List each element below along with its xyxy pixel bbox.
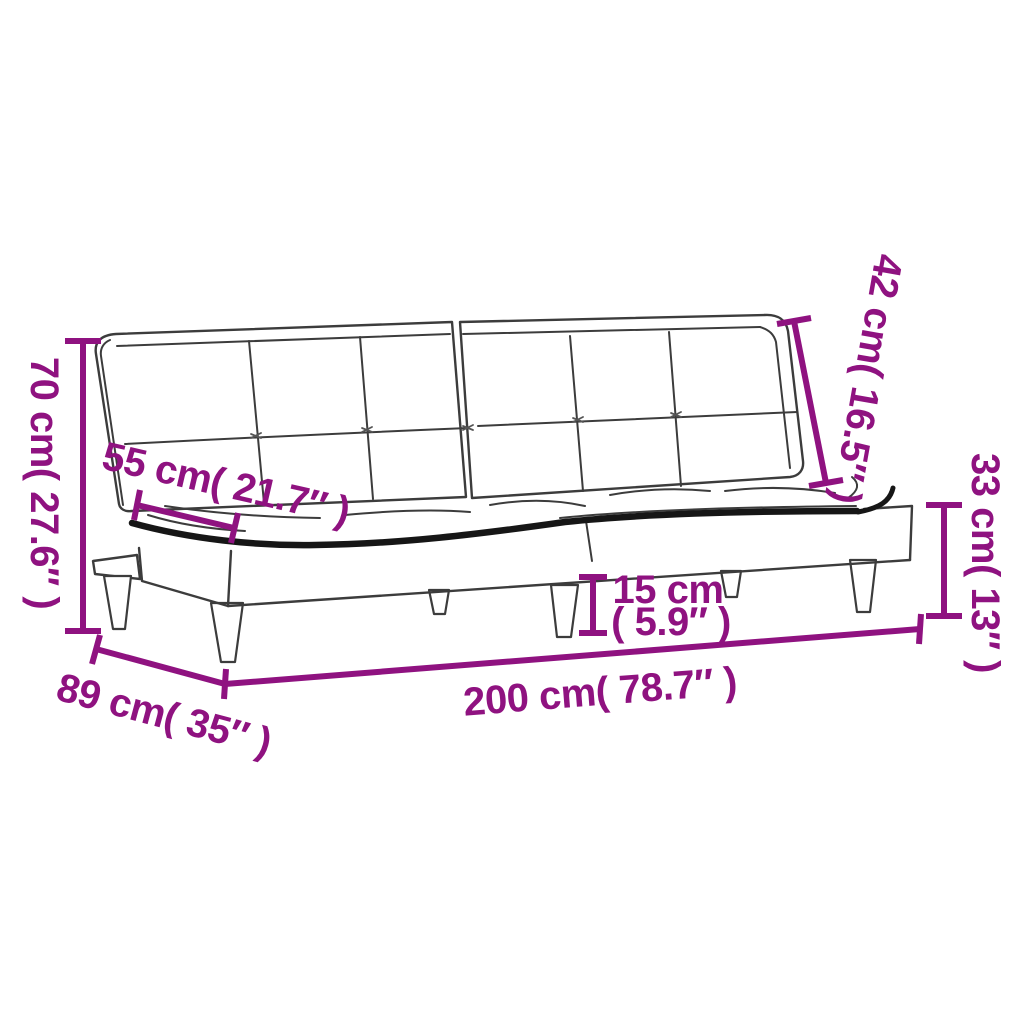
leg-back-left xyxy=(104,576,131,629)
leg-front-left xyxy=(211,603,243,662)
sofa-frame xyxy=(139,506,912,606)
sofa-legs xyxy=(104,560,876,662)
leg-front-middle xyxy=(551,585,578,637)
dimension-line-overall-height xyxy=(65,341,101,631)
product-dimension-diagram: 70 cm( 27.6″ ) 55 cm( 21.7″ ) 42 cm( 16.… xyxy=(0,0,1024,1024)
dimension-line-seat-height xyxy=(926,505,962,616)
label-overall-height: 70 cm( 27.6″ ) xyxy=(24,357,64,609)
backrest-right-panel xyxy=(460,315,803,498)
dimension-line-clearance xyxy=(579,577,607,633)
label-seat-height: 33 cm( 13″ ) xyxy=(965,453,1005,673)
leg-back-right xyxy=(721,571,741,597)
leg-back-middle xyxy=(429,590,449,614)
label-clearance-in: ( 5.9″ ) xyxy=(611,602,731,642)
sofa-line-drawing xyxy=(0,0,1024,1024)
dimension-line-overall-depth xyxy=(92,635,225,684)
leg-front-right xyxy=(850,560,876,612)
